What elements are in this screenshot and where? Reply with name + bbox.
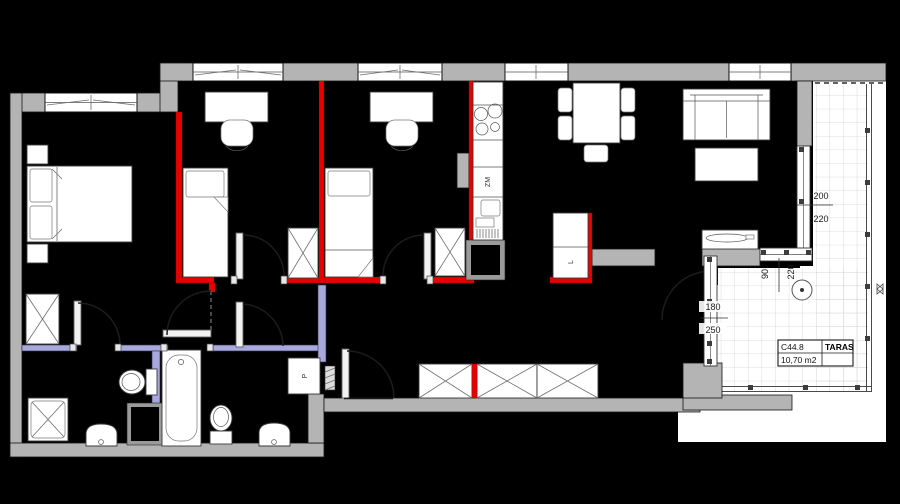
bathroom-shaft [131,407,159,441]
wardrobe-icon [26,294,59,344]
terrace-area: 10,70 m2 [781,355,817,365]
exterior-wall-pillar [797,81,812,146]
exterior-wall-left [10,93,22,457]
exterior-wall-bottom-right [324,398,700,412]
pillow [328,171,370,196]
shower-icon [28,398,68,441]
wall-bedroom2-bedroom3 [319,81,324,283]
kitchen-shaft [471,245,500,275]
window-kitchen [505,63,568,81]
window-bedroom2 [193,63,283,81]
window-bedroom1 [45,93,137,112]
meter-box-icon [325,366,335,390]
washing-machine-label: P [302,373,309,378]
single-bed [325,168,373,277]
bathtub-icon [162,350,201,446]
wall-hall-north-2 [324,277,383,283]
pillow [30,206,52,239]
chair [558,88,572,112]
floor-drain-icon [792,280,812,300]
terrace-card: C44.8 TARAS 10,70 m2 [778,340,854,366]
wall-bedroom1-south [176,277,214,283]
duct-shaft [457,153,469,188]
dishwasher-label: ZM [485,177,492,187]
sofa [683,89,770,140]
pillow [186,171,224,197]
plumbing-wall-3 [213,345,320,351]
pillow [30,169,52,202]
nightstand [27,145,48,164]
interior-wall-living-south-1 [592,249,655,266]
toilet-icon [119,369,157,395]
fridge-label: L [568,260,575,264]
unit-code: C44.8 [781,342,804,352]
chair [621,88,635,112]
fridge: L [553,213,588,278]
wardrobe-icon [435,228,465,276]
exterior-wall-terrace-step [683,363,722,398]
dining-table [573,83,620,143]
terrace-label: TARAS [825,342,854,352]
plumbing-wall-vestibule [318,285,326,362]
dimension-east-window-width: 200 [813,191,828,201]
dimension-terrace-door-height: 250 [705,325,720,335]
chair [584,145,608,162]
wardrobe-divider-wall [472,364,477,398]
plumbing-wall-1 [22,345,77,351]
dimension-terrace-door-width: 180 [705,302,720,312]
desk [205,92,268,122]
washbasin-icon [86,424,117,446]
dimension-east-window-height: 220 [813,214,828,224]
floor-plan-canvas: ZM L [0,0,900,504]
washbasin-icon [259,423,290,446]
plumbing-wall-2 [119,345,168,351]
window-bedroom3 [358,63,442,81]
nightstand [27,244,48,263]
dimension-south-window-height: 220 [786,264,796,279]
wardrobe-icon [288,228,318,278]
double-bed [27,166,132,242]
exterior-wall-jog [308,394,324,443]
single-bed [183,168,228,277]
toilet-icon [210,405,232,444]
chair [621,116,635,140]
washing-machine: P [288,358,320,394]
floor-plan-svg: ZM L [0,0,900,504]
radiator-icon [702,230,758,249]
dimension-south-window-width: 90 [760,269,770,279]
window-living [729,63,791,81]
wall-bedroom1-bedroom2 [176,112,182,279]
desk [370,92,433,122]
chair [558,116,572,140]
coffee-table [695,148,758,181]
hall-wardrobe-row [419,364,598,398]
